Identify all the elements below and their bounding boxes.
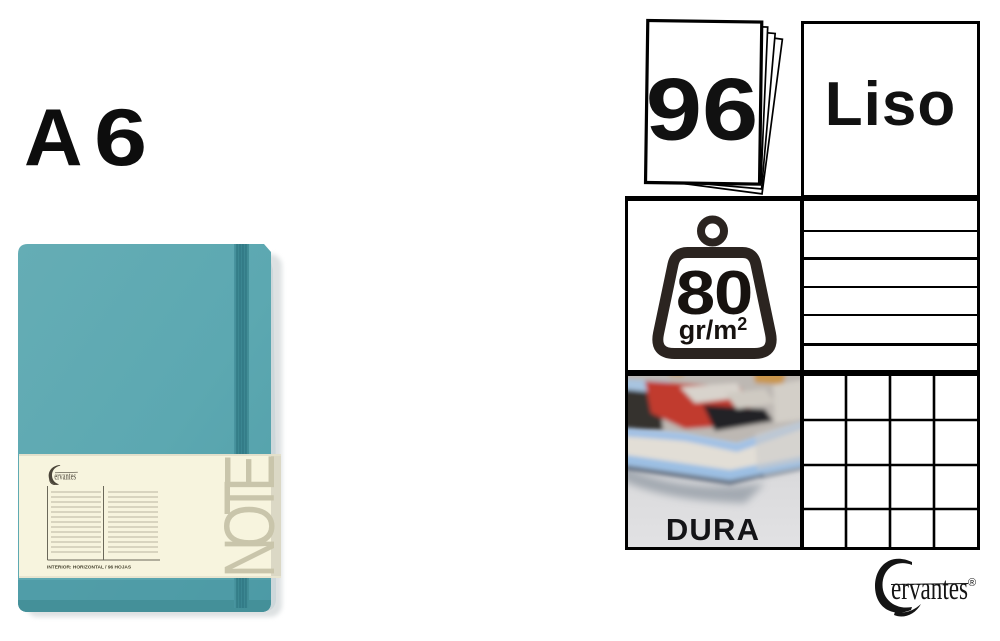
svg-text:ervantes: ervantes <box>891 571 968 607</box>
svg-text:®: ® <box>968 577 976 589</box>
svg-text:ervantes: ervantes <box>54 471 76 482</box>
svg-text:gr/m2: gr/m2 <box>679 314 748 345</box>
svg-text:96: 96 <box>646 61 759 159</box>
svg-text:NOTE: NOTE <box>210 456 290 578</box>
svg-text:INTERIOR: HORIZONTAL / 96 HOJA: INTERIOR: HORIZONTAL / 96 HOJAS <box>47 565 132 571</box>
